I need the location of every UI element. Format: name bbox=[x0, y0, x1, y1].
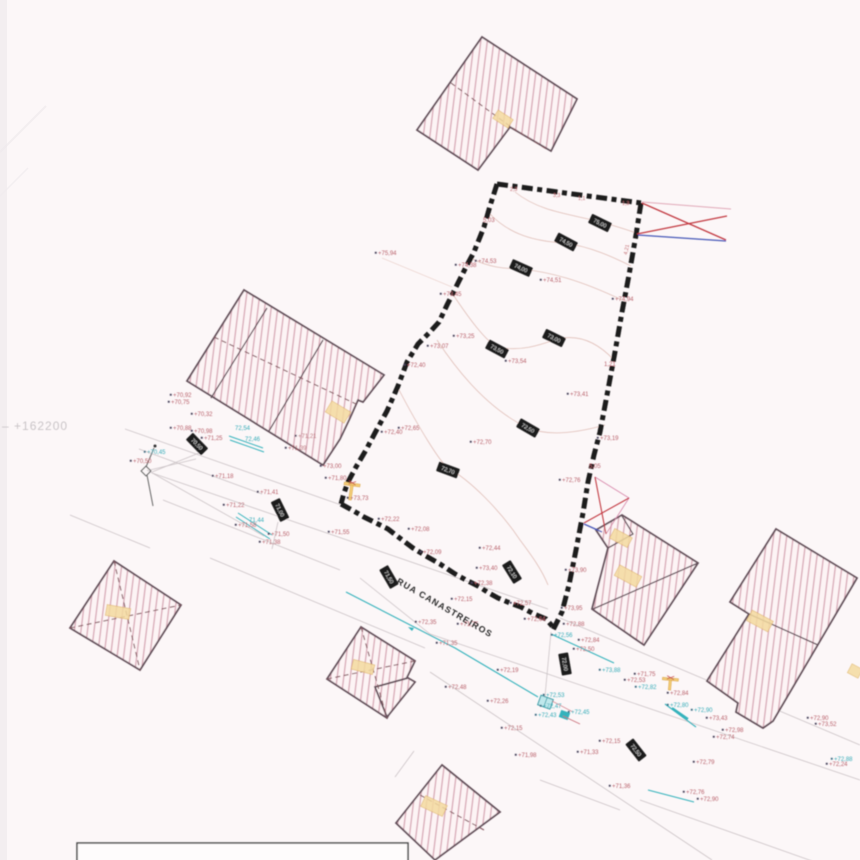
svg-text:+72,82: +72,82 bbox=[638, 685, 657, 691]
svg-text:+72,56: +72,56 bbox=[554, 633, 573, 639]
svg-text:+71,21: +71,21 bbox=[298, 434, 317, 440]
svg-text:+74,38: +74,38 bbox=[458, 263, 477, 269]
svg-text:+70,98: +70,98 bbox=[194, 429, 213, 435]
svg-text:+72,65: +72,65 bbox=[401, 426, 420, 432]
svg-text:+72,45: +72,45 bbox=[571, 710, 590, 716]
svg-text:2,3: 2,3 bbox=[510, 187, 517, 193]
svg-text:+72,64: +72,64 bbox=[527, 617, 546, 623]
svg-text:+73,90: +73,90 bbox=[568, 568, 587, 574]
svg-text:+70,32: +70,32 bbox=[194, 412, 213, 418]
svg-text:1,1: 1,1 bbox=[578, 196, 585, 202]
svg-text:1,21: 1,21 bbox=[604, 362, 616, 368]
svg-text:+71,80: +71,80 bbox=[328, 476, 347, 482]
svg-text:+71,36: +71,36 bbox=[612, 784, 631, 790]
svg-text:+73,07: +73,07 bbox=[430, 344, 449, 350]
svg-text:+72,22: +72,22 bbox=[381, 517, 400, 523]
svg-text:+73,43: +73,43 bbox=[709, 716, 728, 722]
svg-text:+72,53: +72,53 bbox=[627, 678, 646, 684]
svg-text:+73,41: +73,41 bbox=[570, 392, 589, 398]
svg-text:+71,18: +71,18 bbox=[215, 474, 234, 480]
svg-text:+71,33: +71,33 bbox=[580, 750, 599, 756]
svg-text:+72,76: +72,76 bbox=[686, 790, 705, 796]
svg-text:+70,92: +70,92 bbox=[173, 393, 192, 399]
svg-text:+70,75: +70,75 bbox=[171, 400, 190, 406]
svg-text:+73,73: +73,73 bbox=[350, 496, 369, 502]
svg-text:+70,88: +70,88 bbox=[173, 426, 192, 432]
svg-text:+71,38: +71,38 bbox=[262, 540, 281, 546]
svg-text:+73,40: +73,40 bbox=[479, 566, 498, 572]
svg-text:+73,52: +73,52 bbox=[818, 722, 837, 728]
svg-text:+72,80: +72,80 bbox=[670, 703, 689, 709]
svg-text:+72,90: +72,90 bbox=[694, 708, 713, 714]
svg-text:+72,08: +72,08 bbox=[411, 527, 430, 533]
svg-text:+74,53: +74,53 bbox=[478, 259, 497, 265]
svg-text:+72,26: +72,26 bbox=[490, 699, 509, 705]
svg-text:+73,25: +73,25 bbox=[456, 334, 475, 340]
svg-text:+74,51: +74,51 bbox=[543, 278, 562, 284]
svg-text:+72,43: +72,43 bbox=[538, 713, 557, 719]
svg-text:5,03: 5,03 bbox=[483, 218, 495, 224]
svg-text:+70,50: +70,50 bbox=[133, 459, 152, 465]
svg-text:+72,19: +72,19 bbox=[500, 668, 519, 674]
svg-text:+72,15: +72,15 bbox=[602, 739, 621, 745]
svg-text:+72,88: +72,88 bbox=[566, 622, 585, 628]
svg-text:+70,45: +70,45 bbox=[147, 450, 166, 456]
svg-text:+72,15: +72,15 bbox=[504, 726, 523, 732]
svg-text:3,3: 3,3 bbox=[553, 193, 560, 199]
svg-text:+72,44: +72,44 bbox=[482, 546, 501, 552]
svg-text:+72,47: +72,47 bbox=[543, 704, 562, 710]
svg-text:+73,00: +73,00 bbox=[323, 464, 342, 470]
svg-text:+71,55: +71,55 bbox=[331, 530, 350, 536]
svg-text:+72,88: +72,88 bbox=[834, 757, 853, 763]
svg-text:+71,22: +71,22 bbox=[226, 503, 245, 509]
svg-text:+72,84: +72,84 bbox=[670, 691, 689, 697]
svg-text:+72,15: +72,15 bbox=[454, 597, 473, 603]
svg-text:+73,19: +73,19 bbox=[600, 436, 619, 442]
svg-text:5,05: 5,05 bbox=[589, 464, 601, 470]
svg-text:+72,53: +72,53 bbox=[546, 693, 565, 699]
svg-text:+72,38: +72,38 bbox=[474, 581, 493, 587]
svg-text:+73,54: +73,54 bbox=[508, 359, 527, 365]
svg-text:+72,70: +72,70 bbox=[473, 440, 492, 446]
svg-text:+72,74: +72,74 bbox=[716, 735, 735, 741]
svg-text:72,54: 72,54 bbox=[235, 426, 251, 432]
svg-text:+72,40: +72,40 bbox=[407, 363, 426, 369]
svg-text:+71,25: +71,25 bbox=[204, 436, 223, 442]
svg-text:+72,50: +72,50 bbox=[576, 647, 595, 653]
svg-text:+71,35: +71,35 bbox=[439, 641, 458, 647]
svg-text:– +162200: – +162200 bbox=[2, 419, 68, 433]
svg-text:+72,90: +72,90 bbox=[700, 797, 719, 803]
svg-text:+72,84: +72,84 bbox=[581, 638, 600, 644]
svg-text:+72,35: +72,35 bbox=[418, 620, 437, 626]
svg-text:1,3: 1,3 bbox=[622, 201, 629, 207]
svg-text:+72,57: +72,57 bbox=[513, 601, 532, 607]
svg-text:+72,09: +72,09 bbox=[423, 550, 442, 556]
svg-text:+73,45: +73,45 bbox=[443, 292, 462, 298]
svg-text:+71,41: +71,41 bbox=[260, 490, 279, 496]
svg-text:+72,98: +72,98 bbox=[725, 728, 744, 734]
svg-text:+72,48: +72,48 bbox=[448, 685, 467, 691]
svg-text:71,44: 71,44 bbox=[249, 518, 265, 524]
svg-text:72,46: 72,46 bbox=[245, 437, 261, 443]
svg-text:+73,95: +73,95 bbox=[564, 606, 583, 612]
svg-text:+73,88: +73,88 bbox=[602, 668, 621, 674]
svg-text:+72,79: +72,79 bbox=[696, 760, 715, 766]
svg-text:+72,76: +72,76 bbox=[562, 478, 581, 484]
svg-text:+74,94: +74,94 bbox=[615, 297, 634, 303]
svg-text:+71,98: +71,98 bbox=[518, 753, 537, 759]
svg-text:+75,94: +75,94 bbox=[378, 251, 397, 257]
svg-text:+71,50: +71,50 bbox=[271, 532, 290, 538]
svg-text:+71,39: +71,39 bbox=[288, 446, 307, 452]
